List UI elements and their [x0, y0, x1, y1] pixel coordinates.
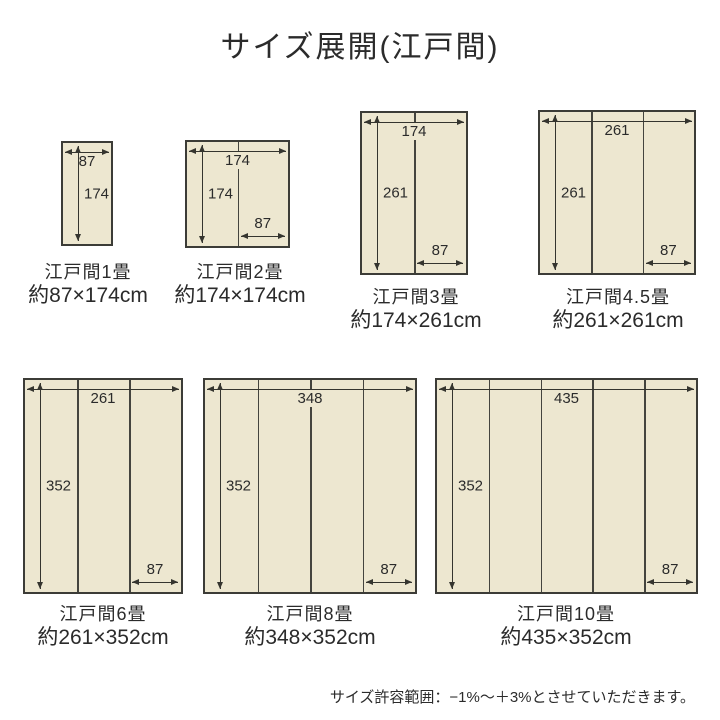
height-dimension-label: 352	[224, 477, 253, 496]
diagram-edoma-3jo: 174 261 87	[360, 111, 468, 275]
diagram-caption-6jo: 江戸間6畳 約261×352cm	[20, 603, 186, 650]
size-name: 江戸間4.5畳	[530, 286, 706, 309]
mat-divider	[489, 380, 491, 592]
mat-width-dimension-label: 87	[644, 561, 696, 578]
mat-divider	[591, 112, 593, 273]
width-dimension-label: 261	[600, 122, 633, 139]
size-name: 江戸間1畳	[18, 261, 158, 284]
height-dimension-arrow	[36, 383, 44, 589]
size-name: 江戸間8畳	[225, 603, 395, 626]
height-dimension-label: 174	[206, 185, 235, 204]
size-name: 江戸間6畳	[20, 603, 186, 626]
size-dimensions: 約87×174cm	[18, 284, 158, 308]
height-dimension-arrow	[74, 146, 82, 241]
mat-width-dimension-label: 87	[363, 561, 416, 578]
size-tolerance-note: サイズ許容範囲：−1%〜＋3%とさせていただきます。	[330, 686, 695, 707]
diagram-edoma-8jo: 348 352 87	[203, 378, 417, 594]
width-dimension-label: 435	[550, 390, 583, 407]
diagram-edoma-10jo: 435 352 87	[435, 378, 698, 594]
diagram-caption-8jo: 江戸間8畳 約348×352cm	[225, 603, 395, 650]
mat-width-dimension-arrow	[646, 259, 691, 267]
height-dimension-arrow	[373, 116, 381, 270]
mat-width-dimension-arrow	[132, 578, 178, 586]
mat-divider	[592, 380, 594, 592]
diagram-caption-10jo: 江戸間10畳 約435×352cm	[480, 603, 652, 650]
width-dimension-label: 174	[221, 152, 254, 169]
mat-width-dimension-arrow	[241, 232, 286, 240]
size-name: 江戸間2畳	[165, 261, 315, 284]
mat-width-dimension-arrow	[417, 259, 463, 267]
mat-width-dimension-label: 87	[129, 561, 181, 578]
diagram-caption-3jo: 江戸間3畳 約174×261cm	[341, 286, 491, 333]
height-dimension-label: 261	[559, 183, 588, 202]
size-dimensions: 約261×352cm	[20, 626, 186, 650]
width-dimension-label: 348	[293, 390, 326, 407]
height-dimension-label: 352	[456, 477, 485, 496]
mat-width-dimension-arrow	[647, 578, 693, 586]
size-dimensions: 約348×352cm	[225, 626, 395, 650]
diagram-edoma-1jo: 87 174	[61, 141, 113, 246]
height-dimension-arrow	[551, 115, 559, 270]
diagram-edoma-2jo: 174 174 87	[185, 140, 290, 248]
height-dimension-label: 174	[82, 184, 111, 203]
height-dimension-label: 352	[44, 477, 73, 496]
size-chart-page: サイズ展開(江戸間) 87 174 江戸間1畳 約87×174cm 174 17…	[0, 0, 720, 720]
mat-divider	[310, 380, 312, 592]
height-dimension-arrow	[448, 383, 456, 589]
size-name: 江戸間3畳	[341, 286, 491, 309]
diagram-caption-4-5jo: 江戸間4.5畳 約261×261cm	[530, 286, 706, 333]
diagram-edoma-4-5jo: 261 261 87	[538, 110, 696, 275]
diagram-edoma-6jo: 261 352 87	[23, 378, 183, 594]
mat-width-dimension-label: 87	[238, 215, 289, 232]
height-dimension-label: 261	[381, 184, 410, 203]
diagram-caption-1jo: 江戸間1畳 約87×174cm	[18, 261, 158, 308]
size-dimensions: 約174×261cm	[341, 309, 491, 333]
size-dimensions: 約435×352cm	[480, 626, 652, 650]
mat-divider	[258, 380, 260, 592]
width-dimension-label: 174	[397, 123, 430, 140]
size-name: 江戸間10畳	[480, 603, 652, 626]
mat-divider	[541, 380, 543, 592]
diagram-caption-2jo: 江戸間2畳 約174×174cm	[165, 261, 315, 308]
width-dimension-label: 261	[86, 390, 119, 407]
size-dimensions: 約261×261cm	[530, 309, 706, 333]
mat-divider	[77, 380, 79, 592]
height-dimension-arrow	[198, 145, 206, 243]
page-title: サイズ展開(江戸間)	[0, 22, 720, 66]
height-dimension-arrow	[216, 383, 224, 589]
mat-width-dimension-label: 87	[414, 242, 466, 259]
mat-width-dimension-label: 87	[643, 242, 694, 259]
size-dimensions: 約174×174cm	[165, 284, 315, 308]
mat-width-dimension-arrow	[366, 578, 413, 586]
